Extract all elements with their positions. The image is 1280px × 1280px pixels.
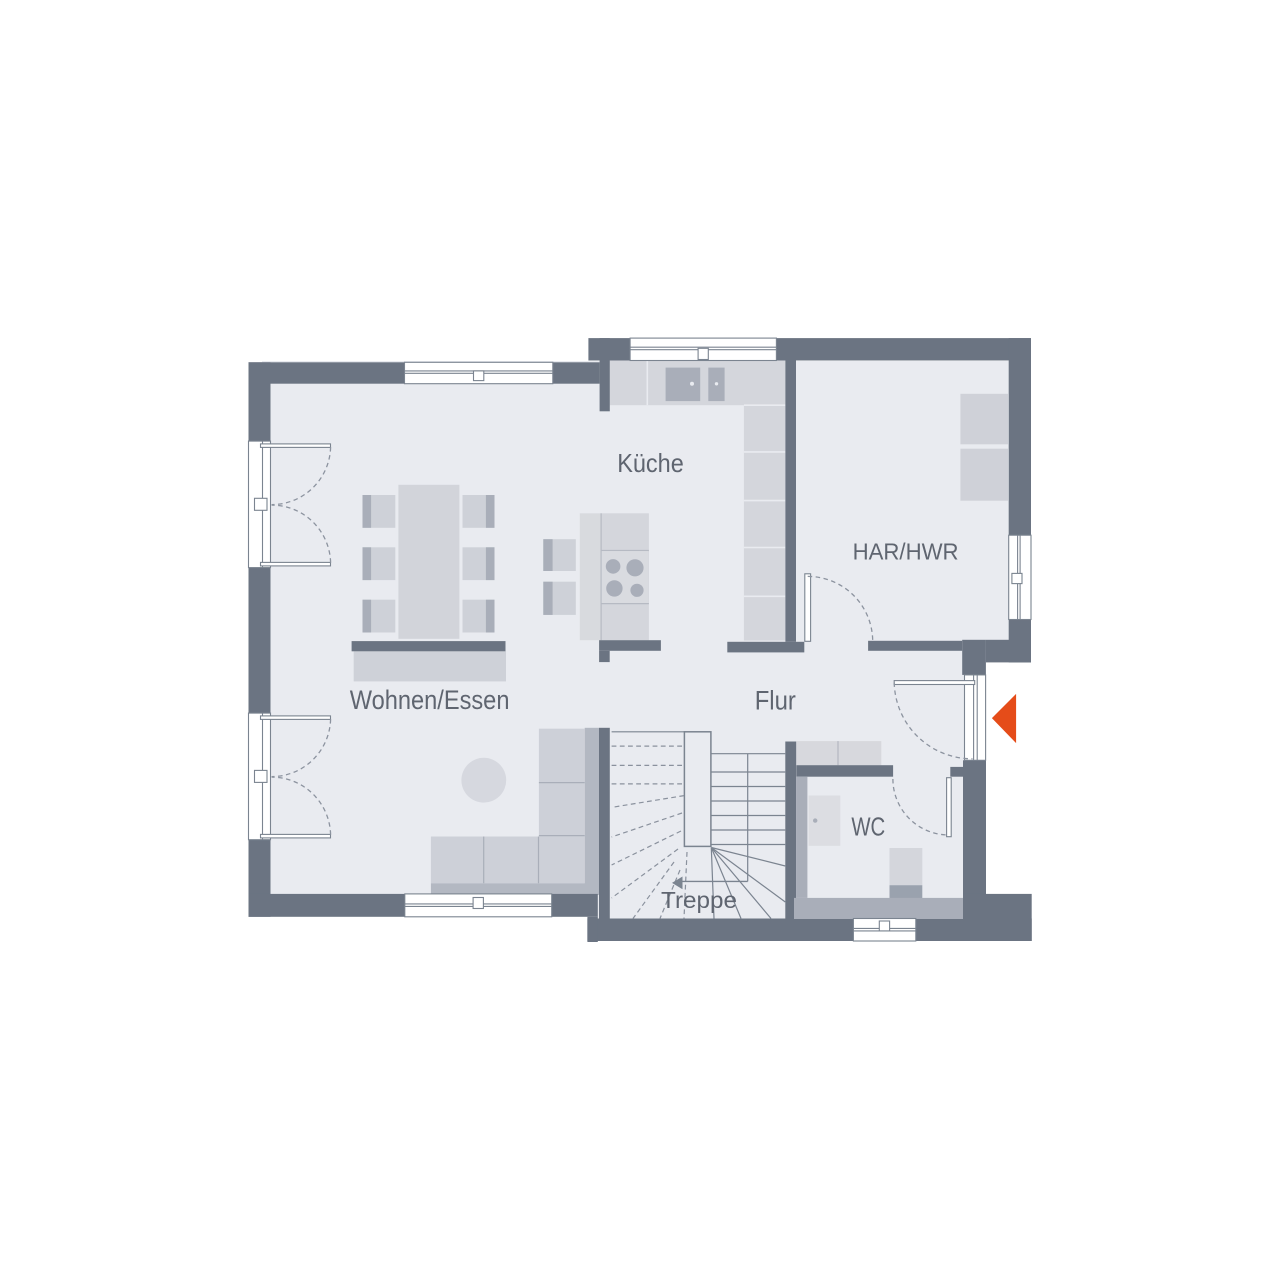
svg-text:HAR/HWR: HAR/HWR	[853, 538, 959, 564]
svg-text:Wohnen/Essen: Wohnen/Essen	[350, 685, 510, 715]
svg-text:WC: WC	[851, 812, 885, 842]
svg-text:Treppe: Treppe	[661, 887, 737, 913]
svg-text:Flur: Flur	[755, 685, 796, 715]
svg-text:Küche: Küche	[617, 448, 684, 478]
